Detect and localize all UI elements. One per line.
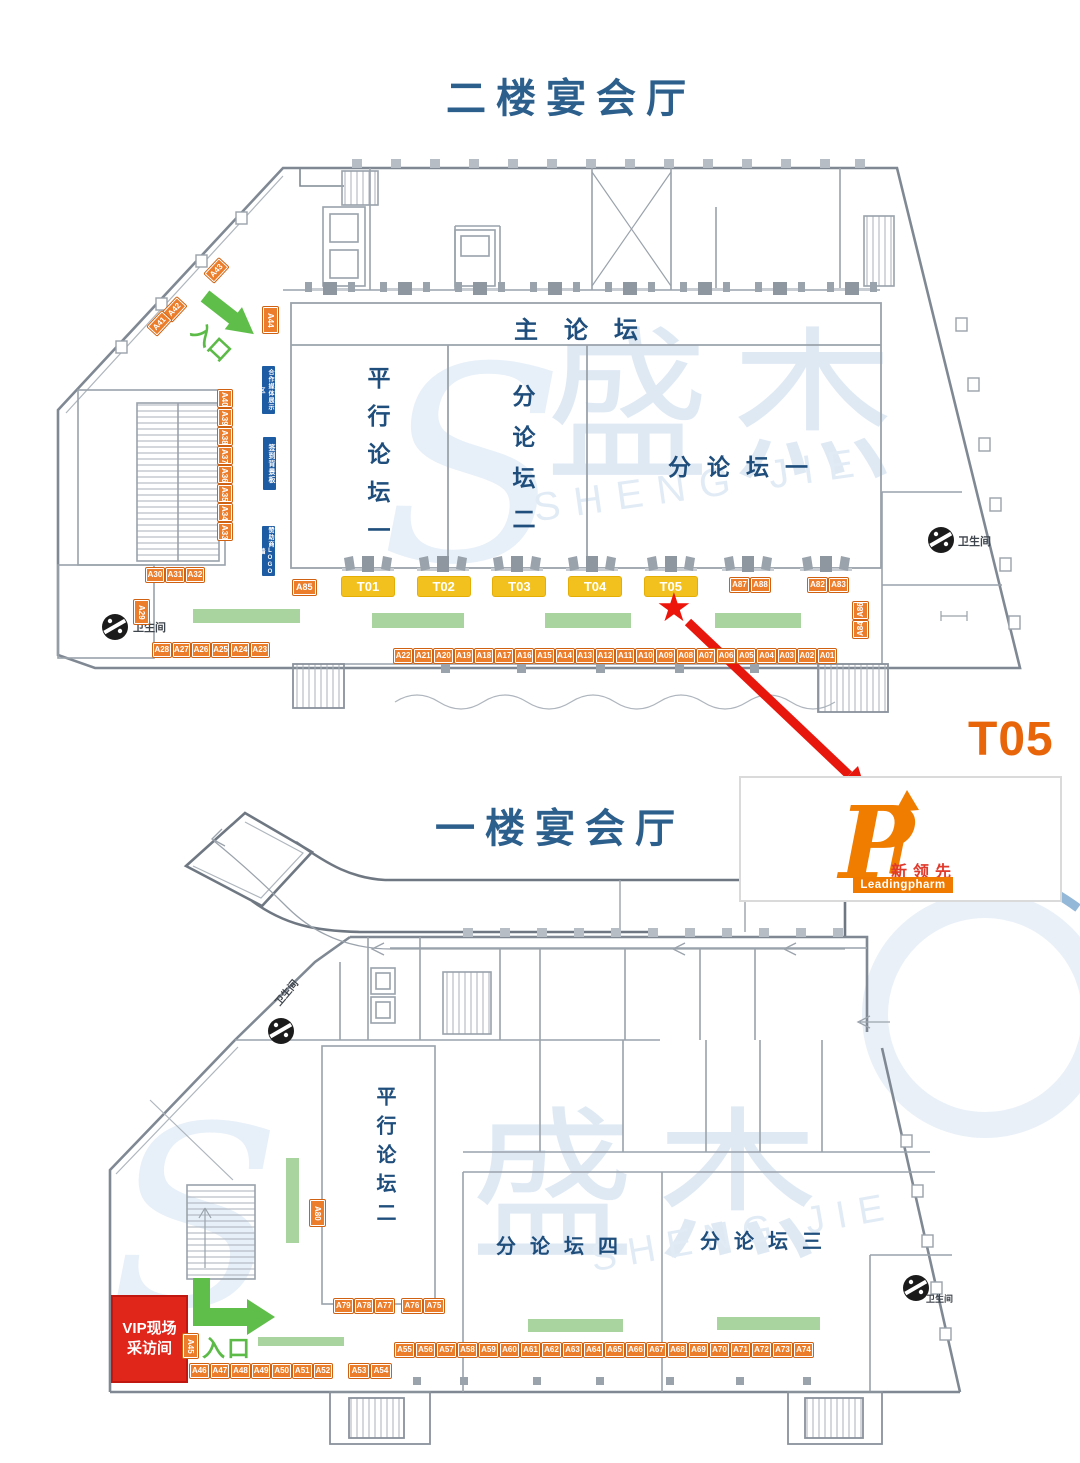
brand-name-en: Leadingpharm bbox=[853, 877, 953, 893]
restroom-icon-floor2-right bbox=[928, 527, 954, 553]
floor1-entrance-label: 入口 bbox=[202, 1329, 252, 1363]
booth-label: A65 bbox=[605, 1343, 624, 1357]
booth-label: A53 bbox=[349, 1364, 369, 1378]
booth-row-a76-a75: A76A75 bbox=[402, 1299, 444, 1313]
booth-label: A10 bbox=[636, 649, 654, 663]
callout-booth-number: T05 bbox=[968, 712, 1054, 767]
floor1-stair-towers bbox=[330, 1392, 882, 1444]
restroom-icon-floor2-left bbox=[102, 614, 128, 640]
sub-forum3-label: 分论坛三 bbox=[700, 1225, 836, 1254]
booth-label: A22 bbox=[394, 649, 412, 663]
booth-label: A31 bbox=[166, 568, 184, 582]
board-checkin-backdrop: 签到背景板 bbox=[263, 437, 276, 490]
booth-label: A76 bbox=[402, 1299, 422, 1313]
booth-a45: A45 bbox=[183, 1334, 198, 1358]
t-booth-label: T02 bbox=[418, 577, 470, 596]
venue-floorplan: S 盛杰 SHENG JIE S 盛杰 SHENG JIE bbox=[0, 0, 1080, 1463]
booth-label: A25 bbox=[212, 643, 230, 657]
vip-room-line1: VIP现场 bbox=[113, 1319, 186, 1339]
booth-row-a53-a54: A53A54 bbox=[349, 1364, 391, 1378]
booth-label: A06 bbox=[717, 649, 735, 663]
booth-label: A17 bbox=[495, 649, 513, 663]
booth-label: A40 bbox=[218, 390, 232, 407]
booth-label: A34 bbox=[218, 504, 232, 521]
booth-label: A20 bbox=[434, 649, 452, 663]
booth-label: A12 bbox=[596, 649, 614, 663]
booth-label: A67 bbox=[647, 1343, 666, 1357]
booth-label: A87 bbox=[730, 578, 749, 592]
restroom-icon-floor1-left bbox=[268, 1018, 294, 1044]
parallel-forum2-label: 平行论坛二 bbox=[371, 1086, 400, 1231]
booth-label: A88 bbox=[751, 578, 770, 592]
booth-label: A14 bbox=[556, 649, 574, 663]
board-media-zone: 合作媒体展示区 bbox=[262, 366, 275, 414]
booth-label: A55 bbox=[395, 1343, 414, 1357]
booth-label: A66 bbox=[626, 1343, 645, 1357]
booth-label: A48 bbox=[231, 1364, 250, 1378]
booth-label: A57 bbox=[437, 1343, 456, 1357]
booth-label: A18 bbox=[475, 649, 493, 663]
booth-label: A56 bbox=[416, 1343, 435, 1357]
booth-label: A69 bbox=[689, 1343, 708, 1357]
parallel-forum1-label: 平行论坛一 bbox=[359, 366, 393, 556]
booth-label: A62 bbox=[542, 1343, 561, 1357]
booth-label: A75 bbox=[424, 1299, 444, 1313]
booth-label: A52 bbox=[314, 1364, 333, 1378]
booth-label: A68 bbox=[668, 1343, 687, 1357]
booth-a86: A86 bbox=[853, 602, 868, 619]
booth-label: A36 bbox=[218, 466, 232, 483]
sub-forum2-label: 分论坛二 bbox=[504, 384, 538, 548]
floor1-column-ticks bbox=[413, 1377, 811, 1385]
exhibitor-logo-card: P 新领先 Leadingpharm bbox=[739, 776, 1062, 902]
booth-label: A21 bbox=[414, 649, 432, 663]
booth-label: A03 bbox=[778, 649, 796, 663]
booth-label: A09 bbox=[656, 649, 674, 663]
booth-label: A74 bbox=[794, 1343, 813, 1357]
booth-label: A35 bbox=[218, 485, 232, 502]
booth-label: A04 bbox=[757, 649, 775, 663]
booth-label: A26 bbox=[192, 643, 210, 657]
booth-label: A32 bbox=[186, 568, 204, 582]
t-booth-row: T01T02T03T04T05 bbox=[342, 577, 697, 596]
vip-room-line2: 采访间 bbox=[113, 1339, 186, 1359]
booth-row-a87-a88: A87A88 bbox=[730, 578, 770, 592]
booth-row-a82-a83: A82A83 bbox=[808, 578, 848, 592]
main-forum-label: 主论坛 bbox=[514, 310, 664, 345]
floor2-title: 二楼宴会厅 bbox=[446, 66, 696, 124]
booth-a29: A29 bbox=[134, 600, 149, 624]
booth-label: A63 bbox=[563, 1343, 582, 1357]
booth-row-a22-a01: A22A21A20A19A18A17A16A15A14A13A12A11A10A… bbox=[394, 649, 836, 663]
booth-label: A59 bbox=[479, 1343, 498, 1357]
booth-label: A51 bbox=[293, 1364, 312, 1378]
booth-label: A15 bbox=[535, 649, 553, 663]
booth-label: A49 bbox=[252, 1364, 271, 1378]
floor2-wall-columns bbox=[352, 159, 865, 168]
booth-row-a30-a32: A30A31A32 bbox=[146, 568, 204, 582]
booth-a85: A85 bbox=[293, 580, 316, 595]
booth-label: A37 bbox=[218, 447, 232, 464]
vip-interview-room: VIP现场 采访间 bbox=[113, 1297, 186, 1381]
booth-label: A01 bbox=[818, 649, 836, 663]
booth-row-a55-a74: A55A56A57A58A59A60A61A62A63A64A65A66A67A… bbox=[395, 1343, 813, 1357]
booth-label: A58 bbox=[458, 1343, 477, 1357]
booth-label: A64 bbox=[584, 1343, 603, 1357]
booth-label: A28 bbox=[153, 643, 171, 657]
booth-label: A24 bbox=[231, 643, 249, 657]
booth-label: A60 bbox=[500, 1343, 519, 1357]
booth-label: A54 bbox=[371, 1364, 391, 1378]
board-sponsor-logo-wall: 赞助商LOGO墙 bbox=[262, 526, 275, 576]
booth-row-a79-a77: A79A78A77 bbox=[334, 1299, 394, 1313]
booth-label: A33 bbox=[218, 523, 232, 540]
booth-label: A39 bbox=[218, 409, 232, 426]
booth-label: A30 bbox=[146, 568, 164, 582]
booth-label: A79 bbox=[334, 1299, 353, 1313]
booth-label: A27 bbox=[173, 643, 191, 657]
booth-label: A82 bbox=[808, 578, 827, 592]
booth-label: A77 bbox=[375, 1299, 394, 1313]
booth-col-a40-a33: A40A39A38A37A36A35A34A33 bbox=[218, 390, 232, 540]
booth-label: A08 bbox=[677, 649, 695, 663]
booth-label: A73 bbox=[773, 1343, 792, 1357]
booth-label: A13 bbox=[576, 649, 594, 663]
booth-label: A05 bbox=[737, 649, 755, 663]
floor2-stair-towers bbox=[293, 664, 888, 712]
floor1-restroom-right-label: 卫生间 bbox=[926, 1292, 953, 1305]
sub-forum1-label: 分论坛一 bbox=[668, 448, 824, 482]
booth-label: A23 bbox=[251, 643, 269, 657]
booth-label: A38 bbox=[218, 428, 232, 445]
floor1-title: 一楼宴会厅 bbox=[435, 796, 685, 854]
booth-label: A19 bbox=[455, 649, 473, 663]
booth-label: A11 bbox=[616, 649, 634, 663]
booth-label: A46 bbox=[190, 1364, 209, 1378]
booth-label: A83 bbox=[829, 578, 848, 592]
booth-label: A70 bbox=[710, 1343, 729, 1357]
booth-label: A78 bbox=[355, 1299, 374, 1313]
highlight-star: ★ bbox=[656, 588, 692, 628]
booth-row-a28-a23: A28A27A26A25A24A23 bbox=[153, 643, 269, 657]
booth-row-a46-a52: A46A47A48A49A50A51A52 bbox=[190, 1364, 332, 1378]
booth-label: A47 bbox=[211, 1364, 230, 1378]
booth-a84: A84 bbox=[853, 621, 868, 638]
floor2-restroom-right-label: 卫生间 bbox=[958, 533, 991, 549]
t-booth-label: T01 bbox=[342, 577, 394, 596]
booth-a80: A80 bbox=[310, 1200, 325, 1226]
booth-label: A02 bbox=[798, 649, 816, 663]
t-booth-label: T03 bbox=[493, 577, 545, 596]
booth-label: A16 bbox=[515, 649, 533, 663]
booth-label: A71 bbox=[731, 1343, 750, 1357]
booth-label: A72 bbox=[752, 1343, 771, 1357]
booth-a44: A44 bbox=[263, 307, 278, 333]
t-booth-label: T04 bbox=[569, 577, 621, 596]
booth-label: A50 bbox=[272, 1364, 291, 1378]
sub-forum4-label: 分论坛四 bbox=[496, 1230, 632, 1259]
booth-label: A07 bbox=[697, 649, 715, 663]
booth-label: A61 bbox=[521, 1343, 540, 1357]
